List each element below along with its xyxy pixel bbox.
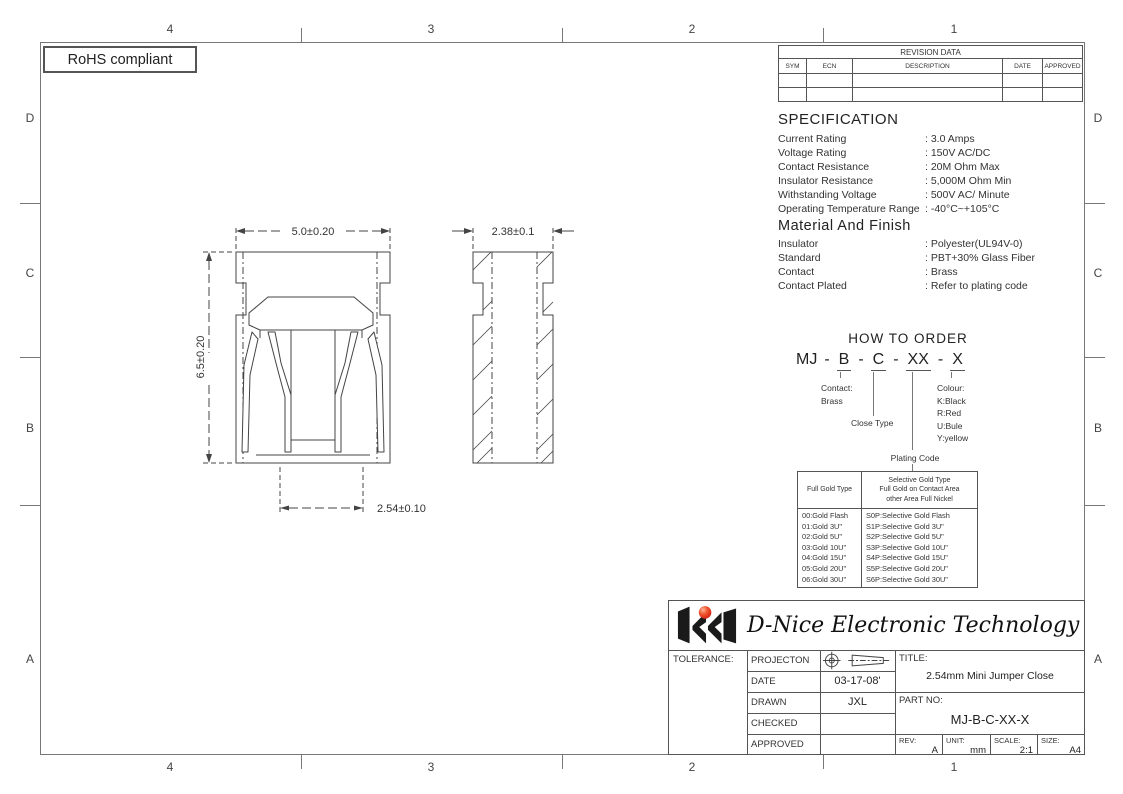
- material-label: Contact Plated: [778, 280, 925, 292]
- colour-callout-note: Colour: K:Black R:Red U:Bule Y:yellow: [937, 382, 968, 445]
- material-row: Insulator: Polyester(UL94V-0): [778, 238, 1035, 252]
- order-code-separator: -: [858, 351, 863, 371]
- dim-arrow: [236, 228, 245, 234]
- logo-red-dot: [699, 606, 712, 619]
- dim-arrow: [553, 228, 562, 234]
- material-value: : PBT+30% Glass Fiber: [925, 252, 1035, 264]
- zone-tick: [20, 203, 40, 204]
- title-block-line: [747, 713, 895, 714]
- part-no-label: PART NO:: [899, 695, 943, 706]
- revision-empty-cell: [779, 74, 807, 88]
- spec-value: : 5,000M Ohm Min: [925, 175, 1011, 187]
- zone-tick: [301, 755, 302, 769]
- plating-code-row: S3P:Selective Gold 10U": [866, 543, 977, 554]
- order-code-colour: X: [950, 351, 965, 371]
- revision-empty-cell: [853, 74, 1003, 88]
- title-block-line: [747, 692, 1085, 693]
- material-label: Standard: [778, 252, 925, 264]
- contact-callout-note: Contact: Brass: [821, 382, 853, 407]
- colour-option-yellow: Y:yellow: [937, 432, 968, 445]
- dim-arrow: [381, 228, 390, 234]
- colour-option-blue: U:Bule: [937, 420, 968, 433]
- plating-code-table: Full Gold Type Selective Gold Type Full …: [797, 471, 978, 588]
- zone-tick: [823, 28, 824, 42]
- full-gold-codes: 00:Gold Flash 01:Gold 3U" 02:Gold 5U" 03…: [798, 509, 862, 588]
- title-label: TITLE:: [899, 653, 928, 664]
- revision-table: REVISION DATA SYM ECN DESCRIPTION DATE A…: [778, 45, 1083, 102]
- plating-code-row: S5P:Selective Gold 20U": [866, 564, 977, 575]
- rohs-compliance-badge: RoHS compliant: [43, 46, 197, 73]
- front-contact-slot: [291, 329, 335, 440]
- zone-tick: [1085, 357, 1105, 358]
- order-code-separator: -: [893, 351, 898, 371]
- material-finish-title: Material And Finish: [778, 218, 1035, 234]
- drawn-label: DRAWN: [751, 697, 787, 708]
- plating-code-row: S6P:Selective Gold 30U": [866, 575, 977, 586]
- zone-col-bottom-2: 2: [680, 760, 704, 774]
- scale-label: SCALE:: [994, 736, 1033, 745]
- tolerance-label: TOLERANCE:: [673, 654, 734, 665]
- spec-row: Insulator Resistance: 5,000M Ohm Min: [778, 175, 1011, 189]
- unit-value: mm: [970, 745, 986, 756]
- spec-row: Voltage Rating: 150V AC/DC: [778, 147, 1011, 161]
- revision-table-title: REVISION DATA: [779, 46, 1083, 59]
- plating-code-row: 02:Gold 5U": [802, 532, 861, 543]
- spec-label: Voltage Rating: [778, 147, 925, 159]
- zone-tick: [20, 505, 40, 506]
- zone-row-right-d: D: [1090, 111, 1106, 125]
- material-label: Contact: [778, 266, 925, 278]
- spec-value: : 20M Ohm Max: [925, 161, 1000, 173]
- unit-cell: UNIT: mm: [943, 735, 989, 754]
- spec-value: : -40°C~+105°C: [925, 203, 999, 215]
- part-views-drawing: 5.0±0.20 6.5±0.20 2.38±0.1 2.54±0.10: [180, 215, 600, 535]
- zone-col-bottom-3: 3: [419, 760, 443, 774]
- cad-sheet: { "sheet": { "rohs_label": "RoHS complia…: [0, 0, 1123, 794]
- how-to-order-title: HOW TO ORDER: [828, 331, 988, 346]
- plating-code-row: S2P:Selective Gold 5U": [866, 532, 977, 543]
- unit-label: UNIT:: [946, 736, 986, 745]
- revision-col-approved: APPROVED: [1043, 59, 1083, 74]
- checked-label: CHECKED: [751, 718, 797, 729]
- contact-callout-value: Brass: [821, 395, 853, 408]
- size-value: A4: [1069, 745, 1081, 756]
- callout-line-close-type: [873, 372, 874, 416]
- selective-header-line: Selective Gold Type: [862, 476, 977, 486]
- colour-option-black: K:Black: [937, 395, 968, 408]
- projection-label: PROJECTON: [751, 655, 809, 666]
- revision-col-description: DESCRIPTION: [853, 59, 1003, 74]
- date-label: DATE: [751, 676, 776, 687]
- revision-col-ecn: ECN: [807, 59, 853, 74]
- revision-empty-cell: [807, 74, 853, 88]
- spec-row: Current Rating: 3.0 Amps: [778, 133, 1011, 147]
- spec-label: Withstanding Voltage: [778, 189, 925, 201]
- specification-title: SPECIFICATION: [778, 111, 1011, 128]
- close-type-note: Close Type: [851, 417, 893, 430]
- zone-tick: [1085, 505, 1105, 506]
- revision-empty-cell: [779, 88, 807, 102]
- revision-empty-cell: [807, 88, 853, 102]
- zone-tick: [562, 755, 563, 769]
- rev-cell: REV: A: [896, 735, 941, 754]
- company-logo: [676, 604, 738, 646]
- material-row: Contact: Brass: [778, 266, 1035, 280]
- order-code-separator: -: [824, 351, 829, 371]
- revision-empty-cell: [1003, 88, 1043, 102]
- order-code-contact: B: [837, 351, 852, 371]
- zone-col-bottom-1: 1: [942, 760, 966, 774]
- zone-row-left-b: B: [22, 421, 38, 435]
- scale-cell: SCALE: 2:1: [991, 735, 1036, 754]
- revision-empty-cell: [1043, 88, 1083, 102]
- dim-pitch-label: 2.54±0.10: [377, 503, 426, 515]
- rev-value: A: [932, 745, 938, 756]
- selective-header-line: Full Gold on Contact Area: [862, 485, 977, 495]
- order-code: MJ - B - C - XX - X: [796, 351, 965, 371]
- spec-row: Contact Resistance: 20M Ohm Max: [778, 161, 1011, 175]
- zone-row-right-a: A: [1090, 652, 1106, 666]
- selective-gold-codes: S0P:Selective Gold Flash S1P:Selective G…: [862, 509, 978, 588]
- title-block-line: [747, 650, 748, 755]
- plating-code-row: 05:Gold 20U": [802, 564, 861, 575]
- jumper-cap: [249, 297, 373, 330]
- material-label: Insulator: [778, 238, 925, 250]
- zone-tick: [301, 28, 302, 42]
- part-number: MJ-B-C-XX-X: [895, 712, 1085, 727]
- size-label: SIZE:: [1041, 736, 1081, 745]
- colour-option-red: R:Red: [937, 407, 968, 420]
- dim-arrow: [354, 506, 363, 511]
- revision-col-sym: SYM: [779, 59, 807, 74]
- revision-empty-cell: [1043, 74, 1083, 88]
- dim-height-label: 6.5±0.20: [195, 336, 207, 379]
- dim-side-width-label: 2.38±0.1: [492, 226, 535, 238]
- zone-col-top-2: 2: [680, 22, 704, 36]
- zone-row-left-c: C: [22, 266, 38, 280]
- company-name: D-Nice Electronic Technology: [747, 606, 1083, 646]
- spec-label: Contact Resistance: [778, 161, 925, 173]
- date-value: 03-17-08': [820, 675, 895, 687]
- material-value: : Polyester(UL94V-0): [925, 238, 1022, 250]
- plating-code-row: S4P:Selective Gold 15U": [866, 553, 977, 564]
- zone-tick: [823, 755, 824, 769]
- plating-code-row: 04:Gold 15U": [802, 553, 861, 564]
- revision-empty-cell: [853, 88, 1003, 102]
- side-view-outline: [473, 252, 553, 463]
- order-code-separator: -: [938, 351, 943, 371]
- selective-gold-header: Selective Gold Type Full Gold on Contact…: [862, 472, 978, 509]
- full-gold-header: Full Gold Type: [798, 472, 862, 509]
- material-value: : Refer to plating code: [925, 280, 1028, 292]
- plating-code-row: S1P:Selective Gold 3U": [866, 522, 977, 533]
- spec-label: Current Rating: [778, 133, 925, 145]
- zone-col-top-1: 1: [942, 22, 966, 36]
- callout-line-plating-table: [912, 464, 913, 471]
- selective-header-line: other Area Full Nickel: [862, 495, 977, 505]
- revision-empty-cell: [1003, 74, 1043, 88]
- zone-tick: [562, 28, 563, 42]
- spec-label: Insulator Resistance: [778, 175, 925, 187]
- plating-code-row: 01:Gold 3U": [802, 522, 861, 533]
- spec-value: : 3.0 Amps: [925, 133, 975, 145]
- specification-section: SPECIFICATION Current Rating: 3.0 Amps V…: [778, 111, 1011, 217]
- callout-line-plating: [912, 372, 913, 450]
- spring-contact: [242, 332, 258, 452]
- spec-value: : 500V AC/ Minute: [925, 189, 1010, 201]
- spring-contact: [368, 332, 384, 452]
- section-hatching: [473, 252, 553, 463]
- order-code-type: C: [871, 351, 887, 371]
- order-code-prefix: MJ: [796, 351, 817, 371]
- plating-code-row: S0P:Selective Gold Flash: [866, 511, 977, 522]
- zone-tick: [1085, 203, 1105, 204]
- material-row: Standard: PBT+30% Glass Fiber: [778, 252, 1035, 266]
- approved-label: APPROVED: [751, 739, 804, 750]
- zone-col-top-3: 3: [419, 22, 443, 36]
- drawn-value: JXL: [820, 696, 895, 708]
- projection-symbol-icon: [823, 651, 893, 670]
- spring-contact: [268, 332, 291, 452]
- scale-value: 2:1: [1020, 745, 1033, 756]
- zone-col-bottom-4: 4: [158, 760, 182, 774]
- zone-row-left-d: D: [22, 111, 38, 125]
- material-value: : Brass: [925, 266, 958, 278]
- dim-arrow: [280, 506, 289, 511]
- dim-arrow: [464, 228, 473, 234]
- plating-code-row: 03:Gold 10U": [802, 543, 861, 554]
- size-cell: SIZE: A4: [1038, 735, 1084, 754]
- title-block-line: [747, 671, 895, 672]
- zone-row-right-c: C: [1090, 266, 1106, 280]
- zone-tick: [20, 357, 40, 358]
- zone-row-left-a: A: [22, 652, 38, 666]
- dim-arrow: [206, 454, 212, 463]
- spec-value: : 150V AC/DC: [925, 147, 990, 159]
- contact-callout-label: Contact:: [821, 382, 853, 395]
- zone-col-top-4: 4: [158, 22, 182, 36]
- zone-row-right-b: B: [1090, 421, 1106, 435]
- rev-label: REV:: [899, 736, 938, 745]
- revision-col-date: DATE: [1003, 59, 1043, 74]
- spec-label: Operating Temperature Range: [778, 203, 925, 215]
- callout-line-contact: [840, 372, 841, 378]
- material-finish-section: Material And Finish Insulator: Polyester…: [778, 218, 1035, 294]
- drawing-title: 2.54mm Mini Jumper Close: [895, 670, 1085, 682]
- spring-contact: [335, 332, 358, 452]
- plating-code-note: Plating Code: [885, 452, 945, 465]
- plating-code-row: 00:Gold Flash: [802, 511, 861, 522]
- dim-arrow: [206, 252, 212, 261]
- spec-row: Withstanding Voltage: 500V AC/ Minute: [778, 189, 1011, 203]
- spec-row: Operating Temperature Range: -40°C~+105°…: [778, 203, 1011, 217]
- plating-code-row: 06:Gold 30U": [802, 575, 861, 586]
- order-code-plating: XX: [906, 351, 931, 371]
- callout-line-colour: [951, 372, 952, 378]
- dim-width-label: 5.0±0.20: [292, 226, 335, 238]
- material-row: Contact Plated: Refer to plating code: [778, 280, 1035, 294]
- colour-label: Colour:: [937, 382, 968, 395]
